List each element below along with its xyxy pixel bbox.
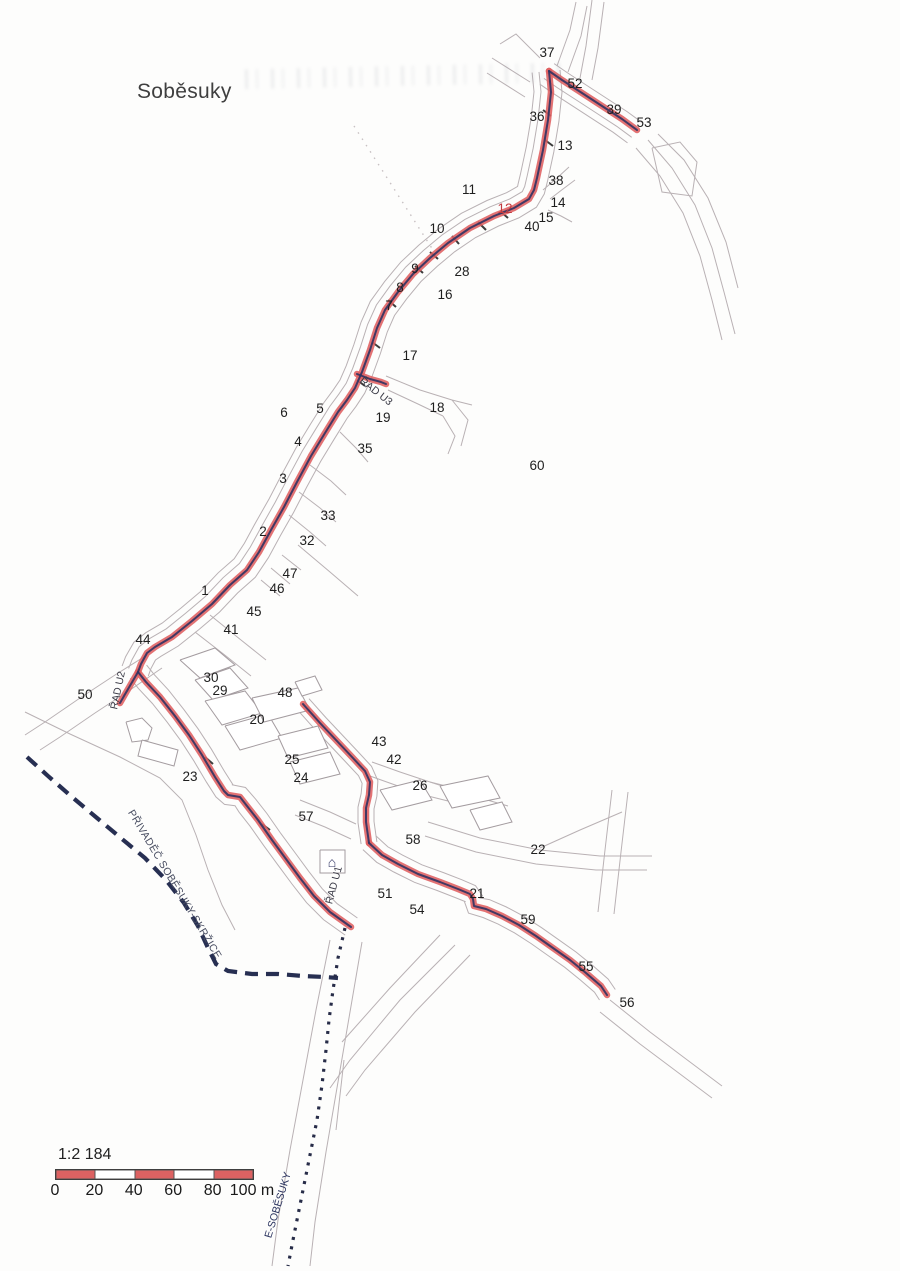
parcel-line (658, 134, 738, 288)
point-label-24: 24 (293, 770, 309, 785)
map-canvas: ⌂ŘAD U3ŘAD U2ŘAD U1E-SOBĚSUKYPŘIVADĚČ SO… (0, 0, 900, 1271)
point-label-4: 4 (294, 434, 302, 449)
point-label-43: 43 (371, 734, 386, 749)
point-label-58: 58 (405, 832, 420, 847)
point-label-33: 33 (320, 508, 335, 523)
point-label-8: 8 (396, 280, 404, 295)
scale-tick-0: 0 (51, 1182, 60, 1200)
point-label-32: 32 (299, 533, 314, 548)
point-label-51: 51 (377, 886, 392, 901)
building-outline (440, 776, 500, 808)
parcel-line (614, 792, 628, 914)
parcel-line (298, 545, 358, 596)
parcel-line (310, 942, 362, 1266)
scale-segment-red (56, 1170, 95, 1179)
parcel-line (346, 955, 470, 1096)
point-label-10: 10 (429, 221, 444, 236)
point-label-9: 9 (411, 261, 419, 276)
scale-tick-5: 100 m (230, 1182, 274, 1200)
building-outline (470, 802, 512, 830)
point-label-12: 12 (497, 201, 512, 216)
point-label-6: 6 (280, 405, 288, 420)
scale-bar: 1:2 184 020406080100 m (55, 1146, 315, 1202)
point-label-48: 48 (277, 685, 292, 700)
point-label-39: 39 (606, 102, 621, 117)
point-label-2: 2 (259, 524, 267, 539)
point-label-18: 18 (429, 400, 444, 415)
parcel-line (568, 6, 587, 72)
parcel-line (610, 1000, 722, 1086)
point-label-36: 36 (529, 109, 544, 124)
point-label-11: 11 (462, 182, 476, 197)
parcel-line (600, 1012, 712, 1098)
point-label-25: 25 (284, 752, 299, 767)
point-label-16: 16 (437, 287, 452, 302)
route-core-main_north (138, 71, 551, 672)
route-highlight-main_north (138, 71, 551, 672)
point-label-40: 40 (524, 219, 539, 234)
scale-bar-graphic (55, 1169, 254, 1180)
point-label-26: 26 (412, 778, 427, 793)
parcel-line (500, 34, 540, 58)
point-label-20: 20 (249, 712, 264, 727)
line-label: PŘIVADĚČ SOBĚSUKY-SKRŽICE (125, 807, 225, 961)
point-label-57: 57 (298, 809, 313, 824)
point-label-52: 52 (567, 76, 582, 91)
map-title: Soběsuky (137, 80, 232, 104)
scale-segment-red (135, 1170, 174, 1179)
point-label-47: 47 (282, 566, 297, 581)
scale-segment-white (95, 1170, 134, 1179)
road-edge-line (122, 73, 534, 666)
point-label-3: 3 (279, 471, 287, 486)
route-core-branch_53 (549, 71, 637, 130)
point-label-7: 7 (385, 298, 393, 313)
point-label-55: 55 (578, 959, 593, 974)
road-edge-line (363, 850, 600, 1000)
point-label-50: 50 (77, 687, 92, 702)
point-label-13: 13 (557, 138, 572, 153)
parcel-line (592, 2, 604, 80)
point-label-35: 35 (357, 441, 372, 456)
parcel-line (598, 790, 612, 912)
scale-segment-red (214, 1170, 253, 1179)
point-label-30: 30 (203, 670, 218, 685)
scale-segment-white (174, 1170, 213, 1179)
parcel-line (648, 140, 735, 334)
point-label-60: 60 (529, 458, 544, 473)
point-label-37: 37 (539, 45, 554, 60)
scale-tick-3: 60 (164, 1182, 182, 1200)
point-label-5: 5 (316, 401, 324, 416)
parcel-line (636, 148, 722, 340)
point-label-59: 59 (520, 912, 535, 927)
building-outline (138, 740, 178, 766)
scale-ratio: 1:2 184 (58, 1146, 111, 1164)
point-label-23: 23 (182, 769, 197, 784)
parcel-line (443, 416, 455, 454)
survey-dotted-line (354, 126, 433, 250)
parcel-line (540, 812, 622, 848)
point-label-1: 1 (201, 583, 209, 598)
scale-tick-4: 80 (204, 1182, 222, 1200)
point-label-46: 46 (269, 581, 284, 596)
road-edge-line (129, 72, 541, 669)
scale-tick-1: 20 (85, 1182, 103, 1200)
point-label-19: 19 (375, 410, 390, 425)
point-label-45: 45 (246, 604, 261, 619)
scale-tick-2: 40 (125, 1182, 143, 1200)
point-label-38: 38 (548, 173, 563, 188)
point-label-41: 41 (223, 622, 238, 637)
point-label-22: 22 (530, 842, 545, 857)
point-label-15: 15 (538, 210, 553, 225)
point-label-44: 44 (135, 632, 151, 647)
point-label-56: 56 (619, 995, 634, 1010)
scale-tick-labels: 020406080100 m (55, 1182, 315, 1202)
point-label-21: 21 (469, 886, 484, 901)
building-outline (126, 718, 152, 742)
point-label-53: 53 (636, 115, 651, 130)
point-label-42: 42 (386, 752, 401, 767)
parcel-line (342, 935, 440, 1042)
point-label-14: 14 (550, 195, 566, 210)
parcel-line (452, 400, 468, 446)
point-label-54: 54 (409, 902, 425, 917)
point-label-17: 17 (402, 348, 417, 363)
parcel-line (310, 465, 346, 495)
point-label-28: 28 (454, 264, 469, 279)
point-label-29: 29 (212, 683, 227, 698)
